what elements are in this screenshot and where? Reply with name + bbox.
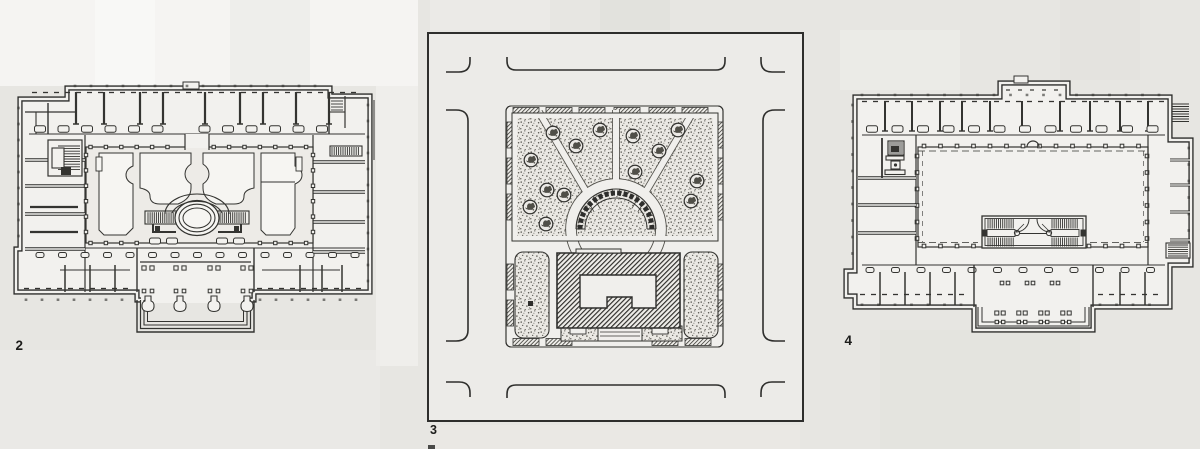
svg-text:3: 3	[430, 423, 437, 437]
svg-text:2: 2	[16, 338, 24, 353]
svg-text:4: 4	[845, 333, 853, 348]
